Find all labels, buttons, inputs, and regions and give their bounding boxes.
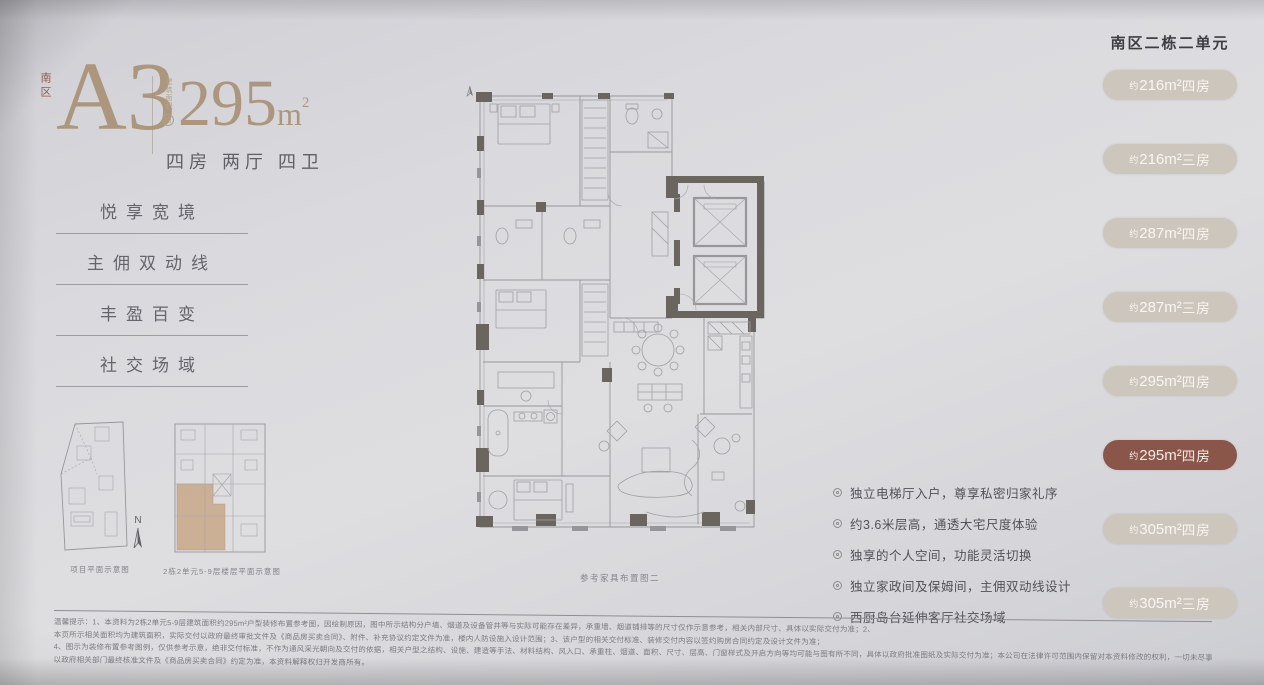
pill-rooms-label: 三房 (1182, 297, 1211, 317)
feature-item: 悦享宽境 (56, 190, 248, 234)
pill-size-label: 287m² (1139, 225, 1182, 242)
area-value: 295 (178, 68, 277, 140)
highlight-text: 独立电梯厅入户，尊享私密归家礼序 (850, 483, 1058, 502)
pill-rooms-label: 四房 (1182, 371, 1211, 391)
zone-label: 南区 (37, 72, 53, 100)
unit-pill[interactable]: 约216m²三房 (1103, 144, 1237, 174)
unit-list-header: 南区二栋二单元 (1095, 32, 1245, 53)
highlight-text: 独享的个人空间，功能灵活切换 (850, 545, 1032, 564)
site-plan-drawing (57, 420, 131, 556)
highlight-text: 独立家政间及保姆间，主佣双动线设计 (850, 576, 1071, 595)
unit-pill[interactable]: 约287m²四房 (1103, 218, 1237, 248)
pill-approx-label: 约 (1129, 449, 1138, 462)
unit-pill[interactable]: 约287m²三房 (1103, 292, 1237, 322)
highlight-item: 约3.6米层高，通透大宅尺度体验 (833, 514, 1108, 533)
floor-key-plan-drawing (167, 420, 275, 560)
area-group: 建筑面积 约 295 m2 (162, 68, 309, 140)
bullet-icon (833, 519, 842, 528)
pill-rooms-label: 四房 (1182, 223, 1211, 243)
area-prefix-label: 建筑面积 (163, 78, 173, 110)
pill-size-label: 216m² (1139, 151, 1182, 168)
floorplan-caption: 参考家具布置图二 (535, 572, 705, 584)
bullet-icon (833, 488, 842, 497)
highlight-text: 约3.6米层高，通透大宅尺度体验 (850, 514, 1038, 533)
mini-plans: N 项目平面示意图 2栋2单元5-9层楼层平面示意图 (55, 418, 323, 578)
pill-approx-label: 约 (1129, 597, 1138, 610)
pill-approx-label: 约 (1129, 153, 1138, 166)
area-approx-badge: 约 (162, 114, 174, 126)
pill-size-label: 295m² (1139, 373, 1182, 390)
unit-pill[interactable]: 约295m²四房 (1103, 440, 1237, 470)
area-unit: m2 (277, 96, 309, 130)
bullet-icon (833, 550, 842, 559)
site-plan-caption: 项目平面示意图 (55, 564, 145, 575)
pill-rooms-label: 三房 (1182, 149, 1211, 169)
pill-approx-label: 约 (1129, 227, 1138, 240)
pill-rooms-label: 四房 (1182, 519, 1211, 539)
highlight-list: 独立电梯厅入户，尊享私密归家礼序约3.6米层高，通透大宅尺度体验独享的个人空间，… (833, 483, 1108, 638)
unit-code: A3 (56, 48, 176, 146)
unit-pill[interactable]: 约305m²四房 (1103, 514, 1237, 544)
pill-approx-label: 约 (1129, 79, 1138, 92)
feature-item: 丰盈百变 (56, 292, 248, 336)
disclaimer-text: 温馨提示：1、本资料为2栋2单元5-9层建筑面积约295m²户型装修布置参考图，… (53, 616, 1211, 677)
unit-pill[interactable]: 约216m²四房 (1103, 70, 1237, 100)
north-compass-icon: N (129, 516, 147, 555)
unit-pill-list: 约216m²四房约216m²三房约287m²四房约287m²三房约295m²四房… (1101, 70, 1239, 618)
pill-size-label: 287m² (1139, 299, 1182, 316)
unit-pill[interactable]: 约305m²三房 (1103, 588, 1237, 618)
pill-rooms-label: 三房 (1182, 593, 1211, 613)
feature-item: 社交场域 (56, 343, 248, 387)
pill-rooms-label: 四房 (1182, 75, 1211, 95)
unit-title-block: 南区 A3 建筑面积 约 295 m2 四房 两厅 四卫 (34, 56, 354, 176)
pill-size-label: 295m² (1139, 447, 1182, 464)
pill-approx-label: 约 (1129, 523, 1138, 536)
pill-rooms-label: 四房 (1182, 445, 1211, 465)
pill-size-label: 216m² (1139, 77, 1182, 94)
title-divider (152, 76, 153, 154)
highlight-item: 独立家政间及保姆间，主佣双动线设计 (833, 576, 1108, 595)
highlight-item: 独立电梯厅入户，尊享私密归家礼序 (833, 483, 1108, 502)
highlight-item: 独享的个人空间，功能灵活切换 (833, 545, 1108, 564)
pill-size-label: 305m² (1139, 595, 1182, 612)
room-layout-label: 四房 两厅 四卫 (166, 148, 324, 174)
disclaimer: 温馨提示：1、本资料为2栋2单元5-9层建筑面积约295m²户型装修布置参考图，… (53, 610, 1211, 677)
feature-list: 悦享宽境主佣双动线丰盈百变社交场域 (56, 190, 248, 394)
area-prefix-group: 建筑面积 约 (162, 78, 174, 126)
bullet-icon (833, 581, 842, 590)
feature-item: 主佣双动线 (56, 241, 248, 285)
floorplan-drawing (452, 84, 790, 570)
pill-size-label: 305m² (1139, 521, 1182, 538)
pill-approx-label: 约 (1129, 301, 1138, 314)
unit-pill[interactable]: 约295m²四房 (1103, 366, 1237, 396)
key-plan-caption: 2栋2单元5-9层楼层平面示意图 (147, 566, 297, 577)
floorplan-board: 南区 A3 建筑面积 约 295 m2 四房 两厅 四卫 悦享宽境主佣双动线丰盈… (0, 0, 1264, 685)
pill-approx-label: 约 (1129, 375, 1138, 388)
